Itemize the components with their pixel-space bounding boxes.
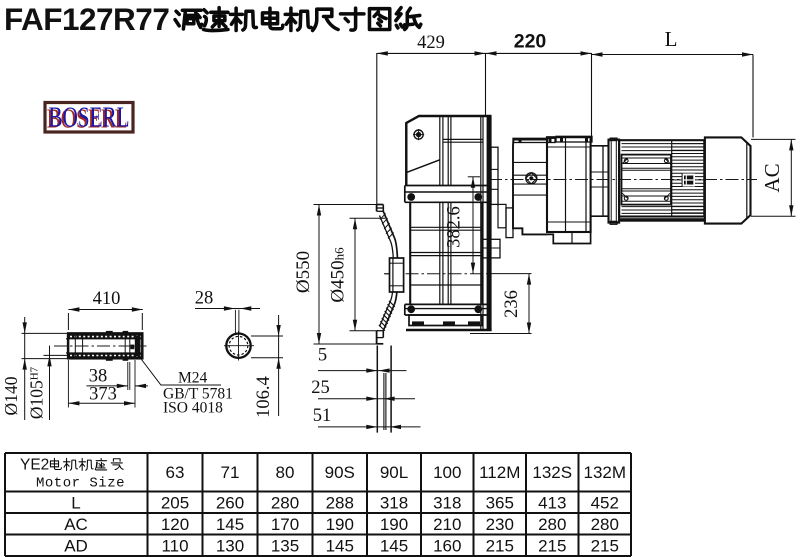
svg-text:288: 288 [326,494,354,513]
svg-text:210: 210 [433,515,461,534]
svg-text:106.4: 106.4 [254,376,274,418]
svg-text:90L: 90L [380,463,408,482]
svg-text:112M: 112M [479,463,520,482]
svg-text:FAF127R77: FAF127R77 [4,1,169,37]
svg-text:38: 38 [89,367,108,387]
svg-text:28: 28 [195,289,214,309]
svg-text:YE2: YE2 [20,457,49,474]
svg-text:BOSERL: BOSERL [49,103,130,134]
svg-text:120: 120 [161,515,189,534]
svg-text:132S: 132S [532,463,572,482]
svg-text:318: 318 [380,494,408,513]
svg-text:205: 205 [161,494,189,513]
svg-text:L: L [71,494,80,513]
svg-text:51: 51 [313,406,332,426]
svg-text:110: 110 [161,537,188,556]
svg-text:5: 5 [318,346,327,366]
svg-text:M24: M24 [178,370,208,387]
svg-text:429: 429 [417,33,445,53]
svg-text:190: 190 [380,515,408,534]
svg-text:260: 260 [216,494,244,513]
svg-text:L: L [665,27,678,51]
svg-text:382.6: 382.6 [445,206,465,248]
svg-text:160: 160 [433,537,461,556]
svg-text:AC: AC [760,163,784,192]
svg-text:63: 63 [166,463,185,482]
svg-text:215: 215 [538,537,566,556]
svg-text:236: 236 [502,290,522,318]
svg-text:215: 215 [591,537,619,556]
svg-text:373: 373 [89,385,117,405]
svg-text:230: 230 [486,515,514,534]
svg-text:ISO 4018: ISO 4018 [163,400,223,417]
svg-text:190: 190 [326,515,354,534]
svg-text:90S: 90S [325,463,355,482]
svg-text:215: 215 [486,537,514,556]
svg-text:135: 135 [271,537,299,556]
svg-text:Ø450h6: Ø450h6 [328,247,349,303]
svg-text:Ø140: Ø140 [1,376,21,415]
svg-text:365: 365 [486,494,514,513]
svg-text:318: 318 [433,494,461,513]
svg-text:Ø550: Ø550 [293,251,314,293]
svg-text:145: 145 [216,515,244,534]
svg-text:452: 452 [591,494,619,513]
svg-text:220: 220 [514,31,547,53]
svg-text:80: 80 [276,463,295,482]
svg-text:132M: 132M [583,463,626,482]
svg-text:AC: AC [64,515,88,534]
svg-text:145: 145 [326,537,354,556]
svg-text:413: 413 [538,494,566,513]
svg-text:170: 170 [271,515,299,534]
svg-text:AD: AD [64,537,88,556]
svg-text:25: 25 [311,378,330,398]
svg-text:100: 100 [433,463,461,482]
svg-text:410: 410 [93,289,121,309]
svg-text:280: 280 [271,494,299,513]
svg-text:130: 130 [216,537,244,556]
svg-text:Motor Size: Motor Size [36,476,125,492]
svg-text:145: 145 [380,537,408,556]
svg-text:280: 280 [591,515,619,534]
svg-text:280: 280 [538,515,566,534]
svg-text:71: 71 [221,463,240,482]
